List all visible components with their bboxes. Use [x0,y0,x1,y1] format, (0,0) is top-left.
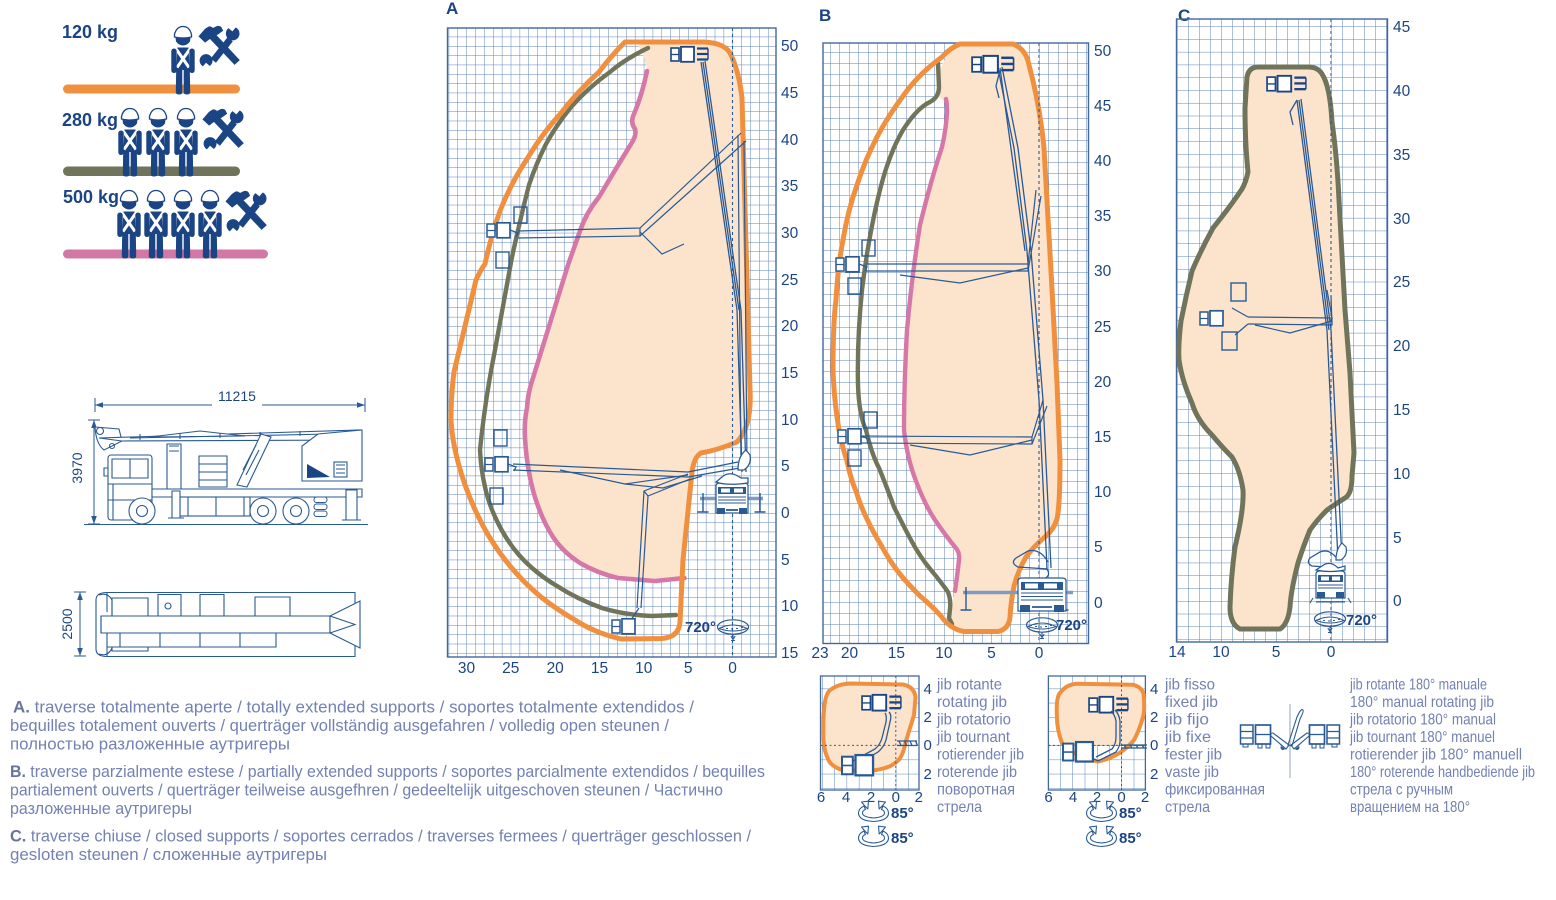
svg-text:jib rotatorio: jib rotatorio [936,712,1011,729]
svg-text:0: 0 [1117,789,1125,806]
svg-text:25: 25 [781,272,798,289]
svg-text:45: 45 [1393,19,1410,36]
svg-text:10: 10 [1212,644,1230,661]
svg-text:стрела с ручным: стрела с ручным [1350,782,1453,799]
svg-text:jib rotante: jib rotante [936,677,1002,694]
svg-text:jib fisso: jib fisso [1164,677,1215,694]
svg-text:23: 23 [811,645,828,662]
svg-text:11215: 11215 [218,388,256,404]
svg-text:30: 30 [458,660,476,677]
svg-text:45: 45 [1094,98,1111,115]
svg-text:25: 25 [1094,319,1111,336]
svg-text:partialement ouverts / querträ: partialement ouverts / querträger teilwe… [10,782,723,800]
svg-text:разложенные аутригеры: разложенные аутригеры [10,800,192,818]
svg-text:20: 20 [547,660,565,677]
svg-text:180° manual rotating jib: 180° manual rotating jib [1350,694,1494,711]
svg-text:30: 30 [1393,211,1411,228]
svg-text:4: 4 [842,789,850,806]
svg-text:15: 15 [1393,402,1410,419]
svg-text:10: 10 [635,660,653,677]
svg-text:стрела: стрела [937,799,982,816]
svg-text:40: 40 [1094,153,1112,170]
svg-text:B. traverse parzialmente estes: B. traverse parzialmente estese / partia… [10,763,765,781]
svg-text:20: 20 [1393,338,1411,355]
svg-text:gesloten steunen / сложенные а: gesloten steunen / сложенные аутригеры [10,846,327,864]
svg-text:15: 15 [591,660,608,677]
svg-text:0: 0 [1035,645,1044,662]
svg-text:35: 35 [781,178,798,195]
svg-text:фиксированная: фиксированная [1165,782,1265,799]
svg-text:6: 6 [1044,789,1052,806]
svg-text:jib tournant: jib tournant [936,729,1010,746]
svg-text:10: 10 [781,598,799,615]
svg-text:jib fixe: jib fixe [1164,729,1211,746]
svg-text:85°: 85° [1119,805,1142,822]
svg-text:40: 40 [781,132,799,149]
svg-text:jib fijo: jib fijo [1164,712,1209,729]
svg-text:roterende jib: roterende jib [937,764,1017,781]
svg-text:0: 0 [728,660,737,677]
svg-text:20: 20 [781,318,799,335]
svg-text:2: 2 [1141,789,1149,806]
svg-text:720°: 720° [1056,617,1087,634]
svg-text:720°: 720° [685,619,716,636]
svg-text:0: 0 [924,737,932,754]
svg-text:180° roterende handbediende ji: 180° roterende handbediende jib [1350,764,1535,781]
svg-text:jib rotante 180° manuale: jib rotante 180° manuale [1349,677,1487,694]
svg-text:15: 15 [888,645,905,662]
svg-text:85°: 85° [891,805,914,822]
svg-text:35: 35 [1393,147,1410,164]
svg-text:10: 10 [781,412,799,429]
svg-text:fixed jib: fixed jib [1165,694,1218,711]
svg-text:85°: 85° [891,830,914,847]
svg-text:500 kg: 500 kg [63,187,119,207]
svg-text:0: 0 [1393,593,1402,610]
svg-text:2500: 2500 [59,608,75,639]
svg-text:jib tournant 180° manuel: jib tournant 180° manuel [1349,729,1495,746]
svg-text:2: 2 [1150,766,1158,783]
svg-text:14: 14 [1168,644,1186,661]
svg-text:10: 10 [1094,484,1112,501]
svg-text:2: 2 [924,766,932,783]
svg-text:4: 4 [1150,681,1158,698]
svg-text:5: 5 [1272,644,1281,661]
svg-text:3970: 3970 [69,452,85,483]
svg-text:5: 5 [684,660,693,677]
svg-text:45: 45 [781,85,798,102]
svg-text:bequilles totalement ouverts /: bequilles totalement ouverts / querträge… [10,717,669,735]
svg-text:fester jib: fester jib [1165,747,1222,764]
svg-text:85°: 85° [1119,830,1142,847]
svg-text:A. traverse totalmente aperte: A. traverse totalmente aperte / totally … [13,699,694,717]
svg-text:rotierender jib: rotierender jib [937,747,1024,764]
svg-text:5: 5 [1393,530,1402,547]
svg-text:25: 25 [502,660,519,677]
svg-text:5: 5 [1094,539,1103,556]
svg-text:0: 0 [781,505,790,522]
svg-text:25: 25 [1393,274,1410,291]
svg-text:5: 5 [781,458,790,475]
svg-text:0: 0 [1094,595,1103,612]
svg-text:10: 10 [935,645,953,662]
svg-text:50: 50 [1094,43,1112,60]
svg-text:C. traverse chiuse / closed su: C. traverse chiuse / closed supports / s… [10,828,751,846]
svg-text:30: 30 [781,225,799,242]
svg-text:5: 5 [987,645,996,662]
svg-text:20: 20 [841,645,859,662]
svg-text:0: 0 [1150,737,1158,754]
svg-text:2: 2 [1150,709,1158,726]
svg-text:6: 6 [817,789,825,806]
svg-text:280 kg: 280 kg [62,110,118,130]
svg-text:jib rotatorio 180° manual: jib rotatorio 180° manual [1349,712,1496,729]
svg-text:стрела: стрела [1165,799,1210,816]
svg-text:rotating jib: rotating jib [937,694,1007,711]
svg-text:2: 2 [915,789,923,806]
svg-text:720°: 720° [1346,612,1377,629]
svg-text:15: 15 [1094,429,1111,446]
svg-text:B: B [819,6,831,25]
svg-text:0: 0 [1327,644,1336,661]
svg-text:5: 5 [781,552,790,569]
svg-text:10: 10 [1393,466,1411,483]
svg-text:30: 30 [1094,263,1112,280]
svg-text:A: A [446,0,458,18]
svg-text:rotierender jib 180° manuell: rotierender jib 180° manuell [1350,747,1522,764]
svg-text:35: 35 [1094,208,1111,225]
svg-text:15: 15 [781,645,798,662]
svg-text:20: 20 [1094,374,1112,391]
svg-text:полностью разложенные аутригер: полностью разложенные аутригеры [10,736,290,754]
svg-text:вращением на 180°: вращением на 180° [1350,799,1470,816]
svg-text:2: 2 [924,709,932,726]
svg-text:4: 4 [924,681,932,698]
svg-text:vaste jib: vaste jib [1165,764,1219,781]
svg-text:4: 4 [1069,789,1077,806]
svg-text:0: 0 [892,789,900,806]
svg-text:40: 40 [1393,83,1411,100]
svg-text:15: 15 [781,365,798,382]
svg-text:120 kg: 120 kg [62,22,118,42]
svg-text:50: 50 [781,38,799,55]
svg-text:поворотная: поворотная [937,782,1015,799]
